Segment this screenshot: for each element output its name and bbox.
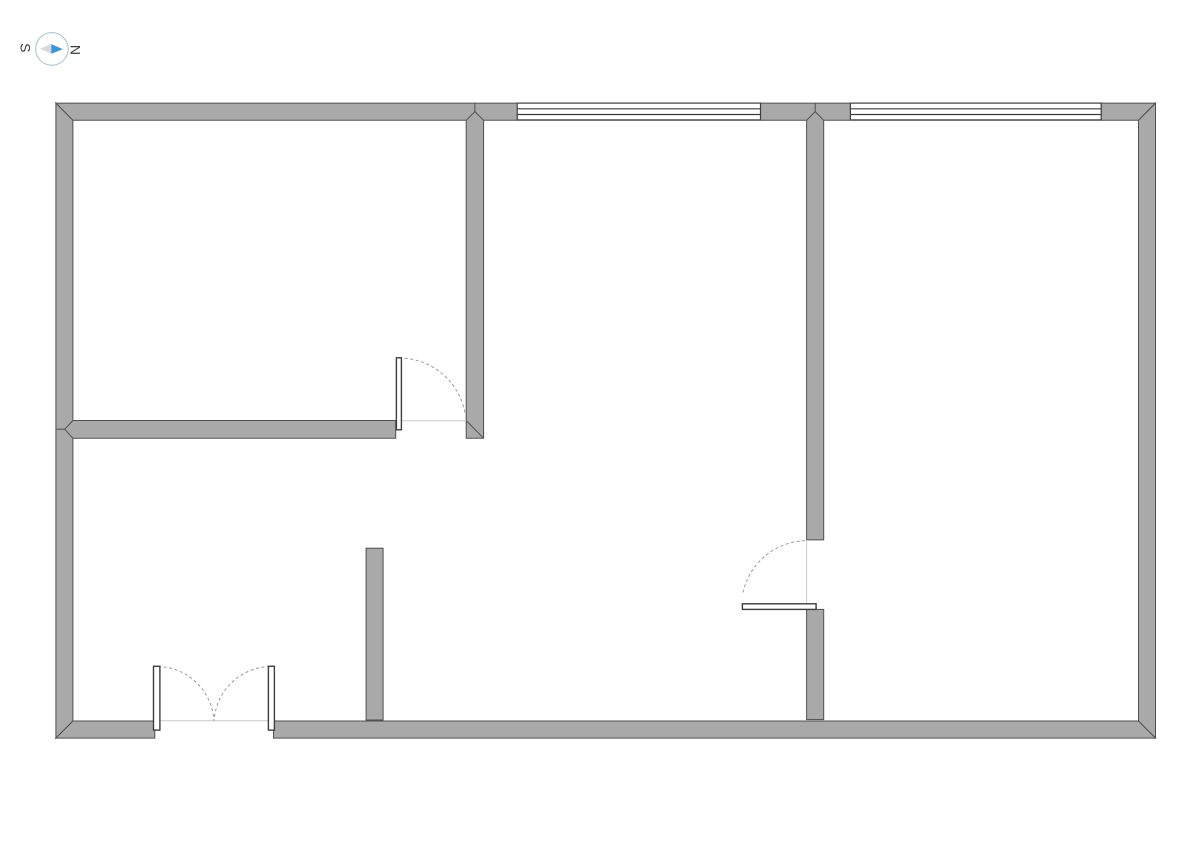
- svg-text:N: N: [68, 45, 84, 55]
- svg-text:S: S: [18, 43, 34, 52]
